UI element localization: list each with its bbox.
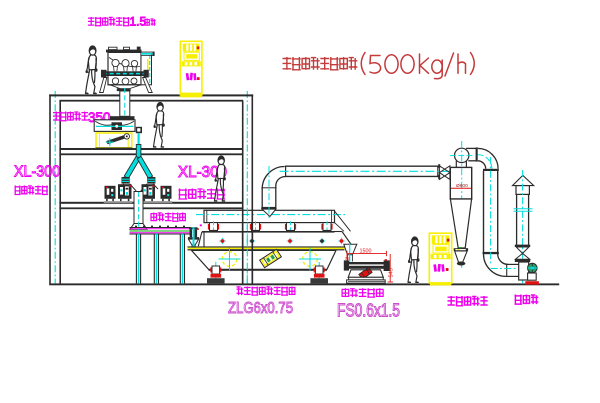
svg-text:XL-300: XL-300 <box>14 164 60 181</box>
svg-text:FS0.6x1.5: FS0.6x1.5 <box>337 301 400 321</box>
svg-text:Ø600: Ø600 <box>456 183 468 189</box>
svg-text:1.5: 1.5 <box>130 15 147 29</box>
svg-text:75: 75 <box>345 256 351 261</box>
svg-text:ZLG6x0.75: ZLG6x0.75 <box>228 300 293 317</box>
svg-text:1500: 1500 <box>360 249 372 255</box>
